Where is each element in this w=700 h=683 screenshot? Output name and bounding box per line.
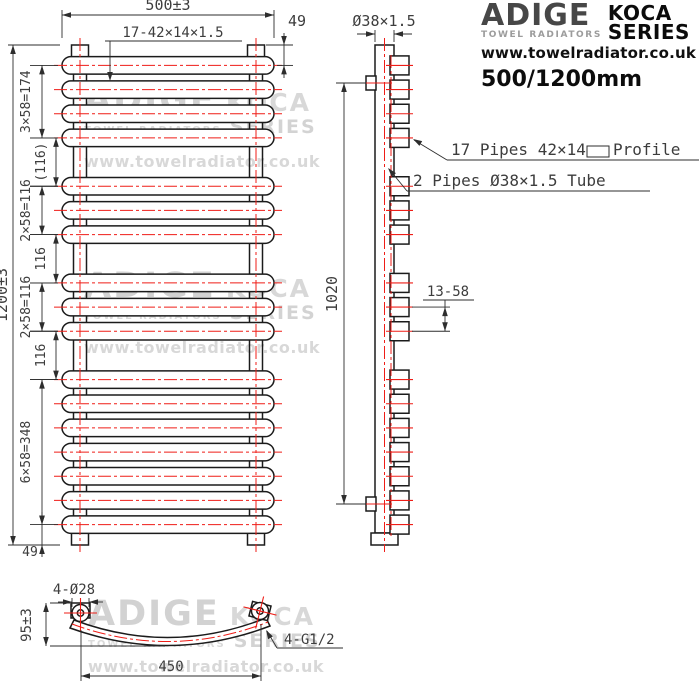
dim-bracket-span: 1020 <box>323 276 341 312</box>
dim-chain: 2×58=116 <box>19 276 34 339</box>
callout-pipes: 17 Pipes 42×14 <box>451 140 586 159</box>
dim-width: 500±3 <box>145 0 190 14</box>
radiator-technical-drawing: 500±317-42×14×1.5493×58=174(116)2×58=116… <box>0 0 700 683</box>
dim-holes: 4-Ø28 <box>53 582 95 598</box>
dim-chain: 2×58=116 <box>19 179 34 242</box>
drawing-sheet: ADIGEKOCA TOWEL RADIATORSSERIES www.towe… <box>0 0 700 683</box>
callout-tubes: 2 Pipes Ø38×1.5 Tube <box>413 171 606 190</box>
series-word: SERIES <box>608 23 690 42</box>
dim-tube: Ø38×1.5 <box>352 12 415 30</box>
dim-depth: 95±3 <box>19 608 35 642</box>
brand-logo: ADIGE TOWEL RADIATORS KOCA SERIES www.to… <box>481 3 699 92</box>
dim-pipe-profile: 17-42×14×1.5 <box>122 25 223 41</box>
brand-website: www.towelradiator.co.uk <box>481 44 699 62</box>
model-size: 500/1200mm <box>481 67 699 92</box>
front-view <box>54 38 282 552</box>
profile-rect-icon <box>587 146 609 157</box>
dim-chain: 116 <box>34 344 49 367</box>
callout-pipes-suffix: Profile <box>613 140 680 159</box>
dim-thread: 4-G1/2 <box>284 632 335 648</box>
dim-bottom-width: 450 <box>158 659 183 675</box>
dim-pipe-pitch: 13-58 <box>427 284 469 300</box>
brand-name: ADIGE <box>481 3 602 29</box>
dim-bottom-offset: 49 <box>22 545 38 560</box>
dim-height: 1200±3 <box>0 268 11 322</box>
brand-tagline: TOWEL RADIATORS <box>481 29 602 41</box>
dim-top-offset: 49 <box>288 12 306 30</box>
side-view <box>362 38 413 552</box>
dim-chain: 3×58=174 <box>19 70 34 133</box>
dim-chain: (116) <box>34 143 49 182</box>
dim-chain: 116 <box>34 247 49 270</box>
dim-chain: 6×58=348 <box>19 421 34 484</box>
